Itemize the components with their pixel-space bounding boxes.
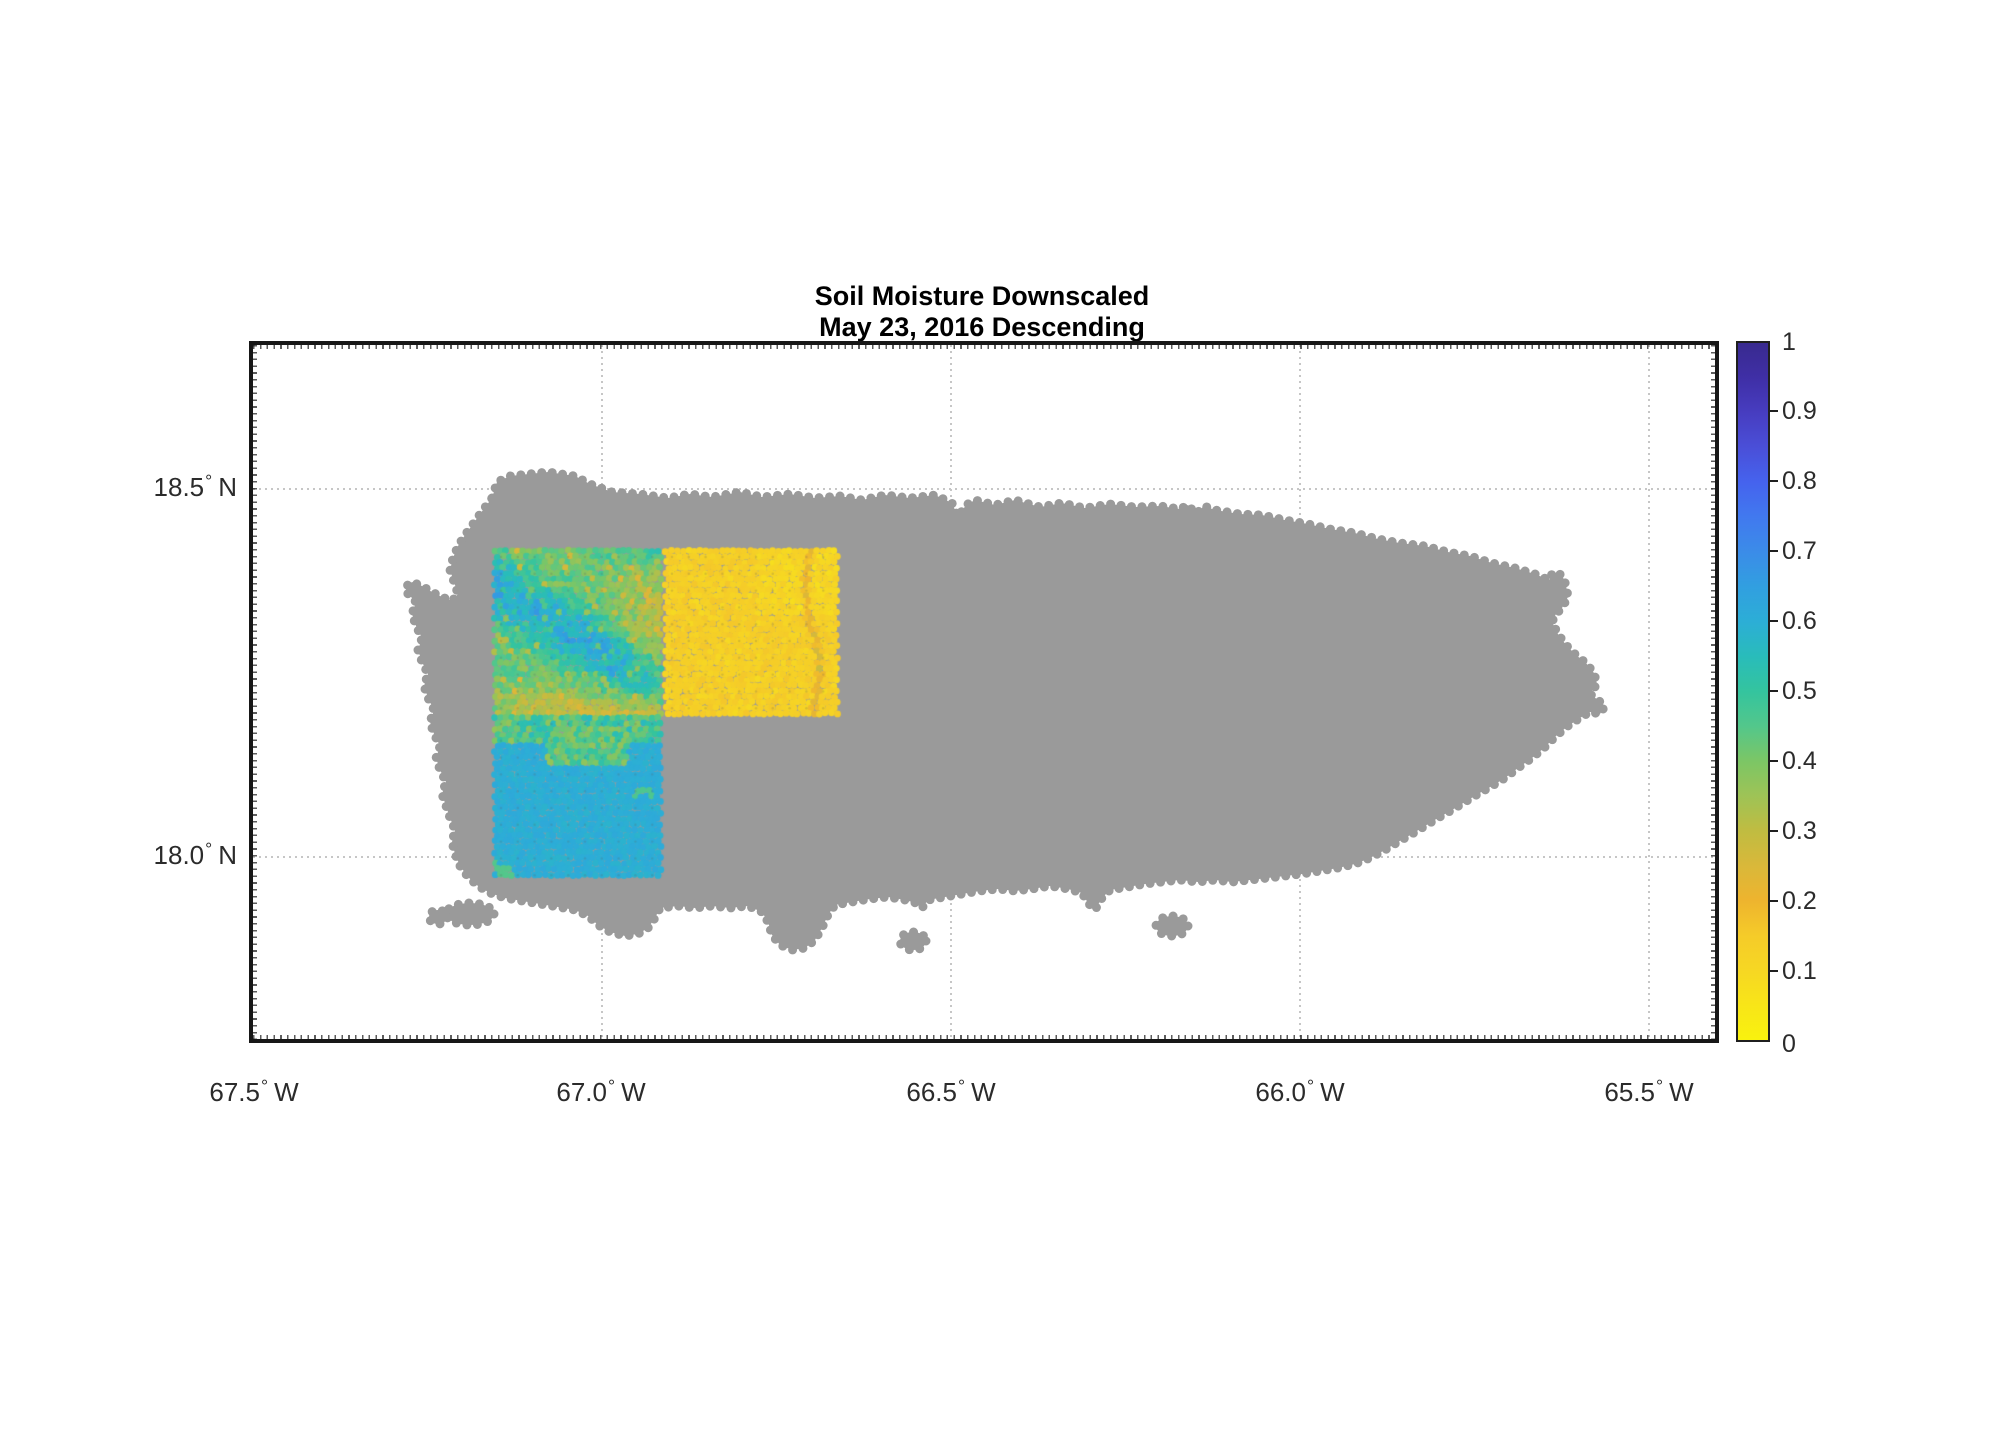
colorbar-label-0.1: 0.1 [1782, 957, 1852, 985]
degree-symbol: ° [204, 839, 213, 859]
axis-minor-ticks-right [1711, 345, 1715, 1039]
colorbar-label-0: 0 [1782, 1030, 1852, 1058]
colorbar-label-0.9: 0.9 [1782, 397, 1852, 425]
title-line-2: May 23, 2016 Descending [249, 312, 1715, 343]
colorbar-label-0.5: 0.5 [1782, 677, 1852, 705]
degree-symbol: ° [607, 1076, 616, 1096]
colorbar-tick [1770, 970, 1778, 972]
ytick-18.5N: 18.5°N [55, 471, 237, 503]
colorbar-tick [1770, 760, 1778, 762]
degree-symbol: ° [1306, 1076, 1315, 1096]
axis-minor-ticks-top [253, 345, 1715, 349]
xtick-66.0W: 66.0°W [1220, 1076, 1380, 1108]
gridline-parallel-18.0N [253, 856, 1715, 858]
axis-minor-ticks-left [253, 345, 257, 1039]
gridline-meridian-65.5W [1648, 345, 1650, 1039]
xtick-66.5W: 66.5°W [871, 1076, 1031, 1108]
degree-symbol: ° [204, 471, 213, 491]
colorbar-label-0.6: 0.6 [1782, 607, 1852, 635]
colorbar-label-0.7: 0.7 [1782, 537, 1852, 565]
hemisphere-letter: W [1320, 1077, 1345, 1107]
figure-title: Soil Moisture Downscaled May 23, 2016 De… [249, 281, 1715, 343]
colorbar-tick [1770, 550, 1778, 552]
map-plot-area [249, 341, 1719, 1043]
colorbar-tick [1770, 620, 1778, 622]
gridline-meridian-67.0W [601, 345, 603, 1039]
colorbar-tick [1770, 410, 1778, 412]
xtick-67.0W: 67.0°W [521, 1076, 681, 1108]
colorbar [1736, 341, 1770, 1042]
colorbar-label-0.8: 0.8 [1782, 467, 1852, 495]
degree-symbol: ° [1655, 1076, 1664, 1096]
hemisphere-letter: N [218, 472, 237, 502]
colorbar-label-1: 1 [1782, 328, 1852, 356]
degree-symbol: ° [957, 1076, 966, 1096]
colorbar-tick [1770, 830, 1778, 832]
hemisphere-letter: W [1669, 1077, 1694, 1107]
xtick-value: 66.0 [1255, 1077, 1306, 1107]
xtick-value: 66.5 [906, 1077, 957, 1107]
axis-minor-ticks-bottom [253, 1035, 1715, 1039]
hemisphere-letter: W [971, 1077, 996, 1107]
title-line-1: Soil Moisture Downscaled [249, 281, 1715, 312]
hemisphere-letter: W [274, 1077, 299, 1107]
gridline-meridian-66.0W [1299, 345, 1301, 1039]
degree-symbol: ° [260, 1076, 269, 1096]
gridline-parallel-18.5N [253, 488, 1715, 490]
figure-window: { "title": { "line1": "Soil Moisture Dow… [0, 0, 1991, 1433]
colorbar-label-0.3: 0.3 [1782, 817, 1852, 845]
plot-canvas-background [253, 345, 1715, 1039]
hemisphere-letter: W [621, 1077, 646, 1107]
xtick-value: 67.5 [209, 1077, 260, 1107]
colorbar-tick [1770, 900, 1778, 902]
xtick-67.5W: 67.5°W [174, 1076, 334, 1108]
gridline-meridian-66.5W [950, 345, 952, 1039]
xtick-value: 67.0 [556, 1077, 607, 1107]
ytick-18.0N: 18.0°N [55, 839, 237, 871]
colorbar-label-0.4: 0.4 [1782, 747, 1852, 775]
colorbar-tick [1770, 690, 1778, 692]
hemisphere-letter: N [218, 840, 237, 870]
ytick-value: 18.0 [154, 840, 205, 870]
xtick-65.5W: 65.5°W [1569, 1076, 1729, 1108]
colorbar-label-0.2: 0.2 [1782, 887, 1852, 915]
ytick-value: 18.5 [154, 472, 205, 502]
colorbar-tick [1770, 480, 1778, 482]
xtick-value: 65.5 [1604, 1077, 1655, 1107]
